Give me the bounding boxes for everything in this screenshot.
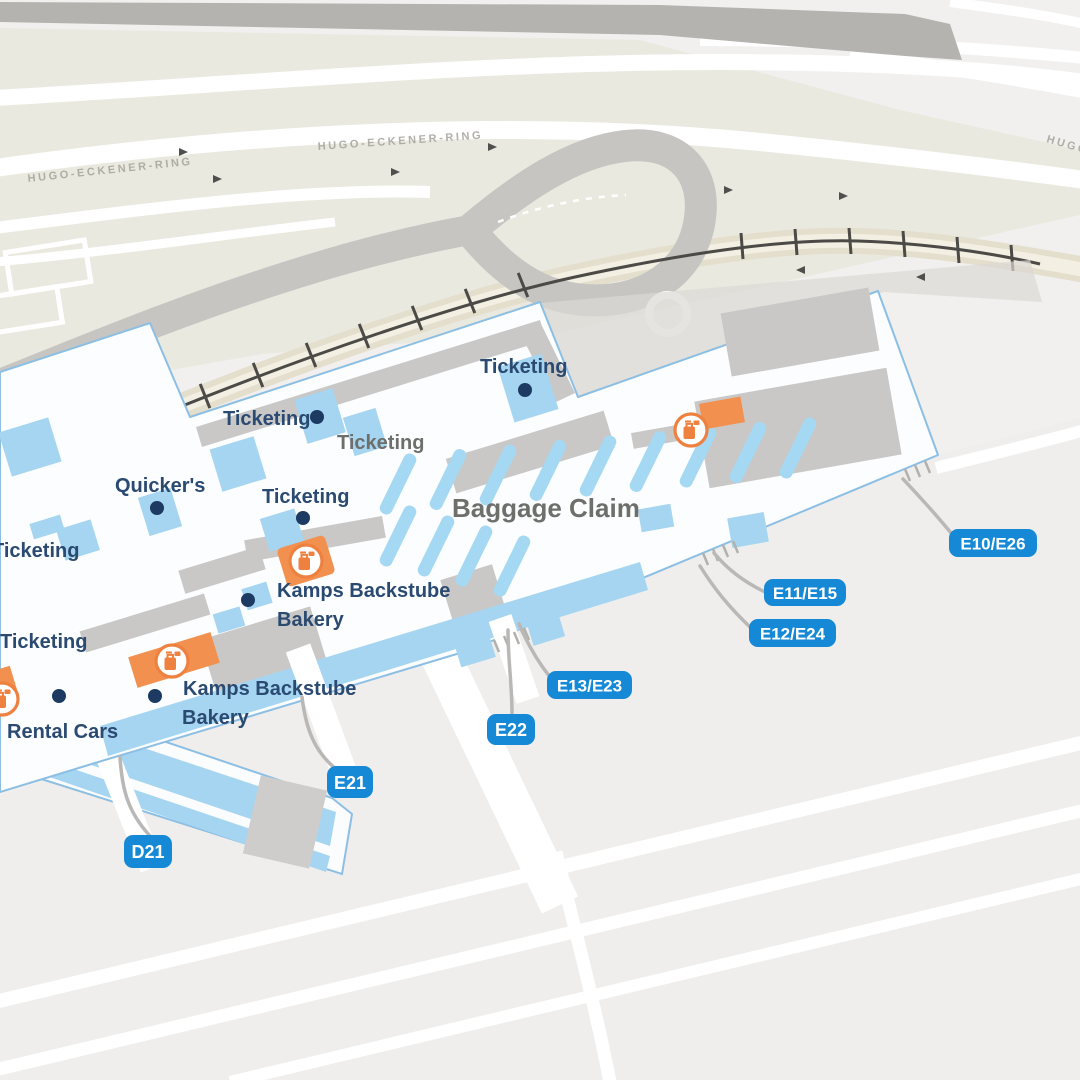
poi-label-kamps-line1: Kamps Backstube — [277, 580, 450, 602]
poi-label-kamps-line2: Bakery — [277, 609, 345, 631]
poi-label-ticketing: Ticketing — [480, 356, 567, 378]
area-label-baggage-claim: Baggage Claim — [452, 493, 640, 523]
gate-badge-e12-e24[interactable]: E12/E24 — [749, 619, 836, 647]
poi-dot — [148, 689, 162, 703]
luggage-icon — [0, 683, 18, 715]
poi-dot — [241, 593, 255, 607]
poi-label-quickers: Quicker's — [115, 475, 205, 497]
svg-text:E22: E22 — [495, 720, 527, 740]
poi-label-ticketing: Ticketing — [0, 540, 79, 562]
gate-badge-d21[interactable]: D21 — [124, 835, 172, 868]
gate-badge-e21[interactable]: E21 — [327, 766, 373, 798]
svg-text:E13/E23: E13/E23 — [557, 677, 622, 696]
airport-terminal-map[interactable]: HUGO-ECKENER-RING HUGO-ECKENER-RING HUGO… — [0, 0, 1080, 1080]
gate-badge-e10-e26[interactable]: E10/E26 — [949, 529, 1037, 557]
poi-dot — [150, 501, 164, 515]
poi-dot — [518, 383, 532, 397]
poi-dot — [296, 511, 310, 525]
poi-label-rental-cars: Rental Cars — [7, 721, 118, 743]
poi-dot — [52, 689, 66, 703]
luggage-icon — [156, 645, 188, 677]
luggage-icon — [675, 414, 707, 446]
poi-label-ticketing: Ticketing — [262, 486, 349, 508]
poi-label-ticketing: Ticketing — [0, 631, 87, 653]
gate-badge-e22[interactable]: E22 — [487, 714, 535, 745]
poi-label-ticketing: Ticketing — [223, 408, 310, 430]
poi-label-kamps-line2: Bakery — [182, 707, 250, 729]
svg-text:E11/E15: E11/E15 — [773, 584, 837, 603]
poi-label-kamps-line1: Kamps Backstube — [183, 678, 356, 700]
gate-badge-e11-e15[interactable]: E11/E15 — [764, 579, 846, 606]
svg-text:D21: D21 — [131, 842, 164, 862]
luggage-icon — [290, 545, 322, 577]
map-canvas: HUGO-ECKENER-RING HUGO-ECKENER-RING HUGO… — [0, 0, 1080, 1080]
svg-text:E21: E21 — [334, 773, 366, 793]
svg-text:E12/E24: E12/E24 — [760, 625, 826, 644]
poi-dot — [310, 410, 324, 424]
area-label-ticketing: Ticketing — [337, 432, 424, 454]
svg-text:E10/E26: E10/E26 — [960, 535, 1025, 554]
gate-badge-e13-e23[interactable]: E13/E23 — [547, 671, 632, 699]
